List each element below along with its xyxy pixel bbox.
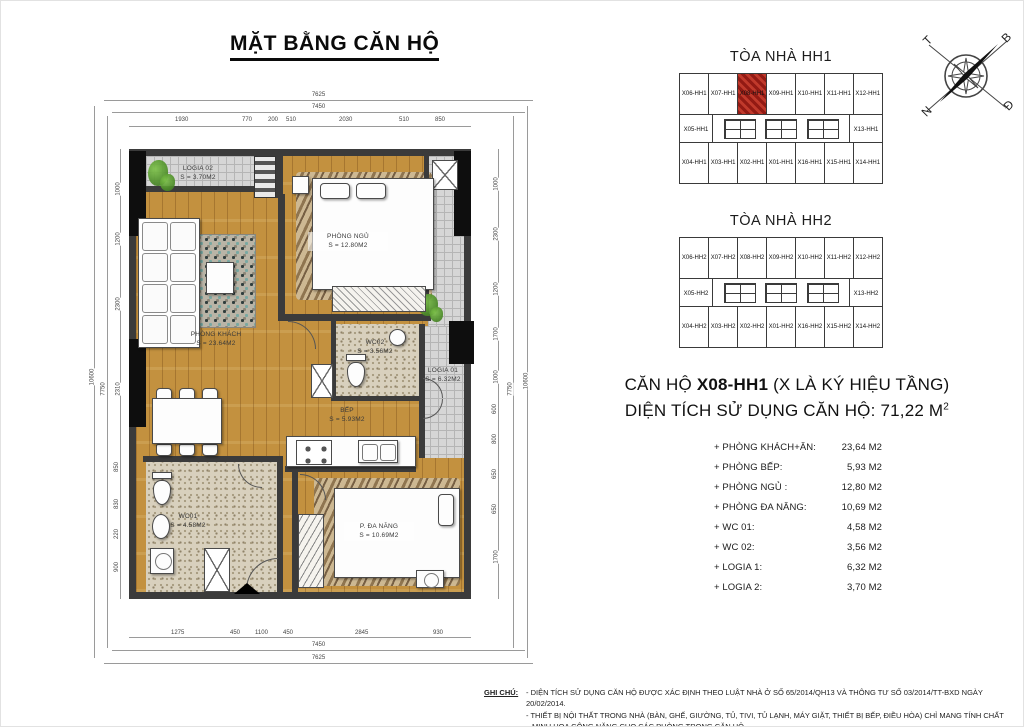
floor-plan: 7625 7450 1930 770 200 510 2030 510 850 … (86, 86, 551, 678)
room-name: LOGIA 02 (158, 164, 238, 173)
dim-label: 800 (492, 434, 498, 444)
footnote-line: - THIẾT BỊ NỘI THẤT TRONG NHÀ (BÀN, GHẾ,… (526, 710, 1004, 721)
building-hh1-title: TÒA NHÀ HH1 (679, 49, 883, 65)
list-item: + PHÒNG BẾP:5,93 M2 (714, 462, 882, 473)
footnote-lines: - DIỆN TÍCH SỬ DỤNG CĂN HỘ ĐƯỢC XÁC ĐỊNH… (526, 687, 1004, 727)
room-name: WC02 (342, 338, 408, 347)
cabinet (311, 364, 333, 398)
apartment-info: CĂN HỘ X08-HH1 (X LÀ KÝ HIỆU TẦNG) DIỆN … (601, 375, 973, 421)
unit-cell: X04-HH2 (679, 306, 709, 348)
dim-label: 7450 (310, 104, 327, 110)
nightstand (292, 176, 309, 194)
dim-label: 2300 (116, 297, 122, 310)
unit-cell: X13-HH2 (849, 278, 883, 310)
room-list-value: 3,70 M2 (847, 582, 882, 593)
dim-label: 7450 (310, 642, 327, 648)
room-label-kitchen: BẾP S = 5.93M2 (312, 406, 382, 425)
unit-cell: X15-HH1 (824, 142, 854, 184)
list-item: + PHÒNG NGỦ :12,80 M2 (714, 482, 882, 493)
room-list-label: + PHÒNG BẾP: (714, 462, 783, 473)
dim-label: 650 (492, 504, 498, 514)
dim-label: 1700 (494, 550, 500, 563)
footnote-label: GHI CHÚ: (484, 687, 518, 698)
coffee-table (206, 262, 234, 294)
unit-cell: X01-HH2 (766, 306, 796, 348)
unit-cell: X16-HH1 (795, 142, 825, 184)
elevator-core (724, 119, 756, 139)
sofa-cushion (170, 222, 196, 251)
plant (430, 307, 443, 322)
apartment-area-line: DIỆN TÍCH SỬ DỤNG CĂN HỘ: 71,22 M2 (601, 401, 973, 421)
unit-cell: X13-HH1 (849, 114, 883, 146)
list-item: + PHÒNG ĐA NĂNG:10,69 M2 (714, 502, 882, 513)
room-list-value: 10,69 M2 (842, 502, 882, 513)
room-list-label: + PHÒNG NGỦ : (714, 482, 787, 493)
washer-drum (155, 553, 172, 570)
list-item: + PHÒNG KHÁCH+ĂN:23,64 M2 (714, 442, 882, 453)
dim-label: 770 (241, 117, 253, 123)
dim-label: 830 (114, 499, 120, 509)
room-area: S = 12.80M2 (308, 241, 388, 250)
pillow (320, 183, 350, 199)
room-name: P. ĐA NĂNG (344, 522, 414, 531)
dim-label: 1100 (254, 630, 269, 636)
dining-chair (179, 444, 195, 456)
dim-label: 1000 (494, 370, 500, 383)
sofa-cushion (142, 253, 168, 282)
dim-line: 7625 (104, 663, 533, 664)
hh1-mid-row: X05-HH1 X13-HH1 (679, 114, 883, 144)
room-list-value: 12,80 M2 (842, 482, 882, 493)
dining-table (152, 398, 222, 444)
footnote: GHI CHÚ: - DIỆN TÍCH SỬ DỤNG CĂN HỘ ĐƯỢC… (484, 687, 1004, 727)
dim-label: 1000 (494, 177, 500, 190)
room-label-wc1: WC01 S = 4.58M2 (154, 512, 222, 531)
table-top (424, 573, 439, 588)
building-hh2-title: TÒA NHÀ HH2 (679, 213, 883, 229)
dim-label: 1700 (494, 327, 500, 340)
room-area: S = 3.56M2 (342, 347, 408, 356)
elevator-core (724, 283, 756, 303)
dim-label: 650 (492, 469, 498, 479)
room-list-label: + LOGIA 2: (714, 582, 762, 593)
unit-cell: X02-HH2 (737, 306, 767, 348)
dim-label: 1000 (116, 182, 122, 195)
elevator-core (765, 283, 797, 303)
footnote-line: MINH HỌA CÔNG NĂNG CHO CÁC PHÒNG TRONG C… (526, 721, 1004, 727)
room-area: S = 6.32M2 (413, 375, 473, 384)
hh1-top-row: X06-HH1 X07-HH1 X08-HH1 X09-HH1 X10-HH1 … (679, 73, 883, 115)
wall (276, 156, 283, 198)
room-list-label: + PHÒNG ĐA NĂNG: (714, 502, 807, 513)
dim-label: 510 (285, 117, 297, 123)
unit-cell: X14-HH1 (853, 142, 883, 184)
room-label-multi: P. ĐA NĂNG S = 10.69M2 (344, 522, 414, 541)
unit-cell: X04-HH1 (679, 142, 709, 184)
sofa-cushion (142, 222, 168, 251)
room-label-living: PHÒNG KHÁCH S = 23.64M2 (176, 330, 256, 349)
toilet (152, 472, 172, 479)
unit-cell: X12-HH1 (853, 73, 883, 115)
unit-cell: X03-HH2 (708, 306, 738, 348)
dim-label: 930 (432, 630, 444, 636)
dim-line: 7450 (112, 650, 525, 651)
list-item: + WC 02:3,56 M2 (714, 542, 882, 553)
dim-line (129, 637, 471, 638)
list-item: + LOGIA 2:3,70 M2 (714, 582, 882, 593)
unit-cell: X09-HH2 (766, 237, 796, 279)
dim-label: 1930 (174, 117, 189, 123)
list-item: + LOGIA 1:6,32 M2 (714, 562, 882, 573)
dim-line (120, 149, 121, 599)
washing-machine (150, 548, 174, 574)
stove (296, 440, 332, 465)
technical-shaft (432, 160, 458, 190)
compass-label-east: Đ (1001, 97, 1017, 113)
dim-line: 7450 (112, 112, 525, 113)
unit-cell: X06-HH1 (679, 73, 709, 115)
dim-label: 10600 (523, 373, 529, 390)
list-item: + WC 01:4,58 M2 (714, 522, 882, 533)
dim-line (129, 126, 471, 127)
room-area: S = 3.70M2 (158, 173, 238, 182)
room-list-label: + PHÒNG KHÁCH+ĂN: (714, 442, 816, 453)
room-list-value: 23,64 M2 (842, 442, 882, 453)
dim-label: 7750 (101, 382, 107, 395)
room-list-label: + LOGIA 1: (714, 562, 762, 573)
room-name: BẾP (312, 406, 382, 415)
room-name: PHÒNG NGỦ (308, 232, 388, 241)
footnote-line: - DIỆN TÍCH SỬ DỤNG CĂN HỘ ĐƯỢC XÁC ĐỊNH… (526, 687, 1004, 710)
wardrobe (298, 514, 324, 588)
unit-cell: X07-HH1 (708, 73, 738, 115)
hh2-bottom-row: X04-HH2 X03-HH2 X02-HH2 X01-HH2 X16-HH2 … (679, 306, 883, 348)
dim-label: 510 (398, 117, 410, 123)
unit-cell: X03-HH1 (708, 142, 738, 184)
elevator-core (807, 119, 839, 139)
wall (331, 396, 424, 401)
dim-label: 2310 (116, 382, 122, 395)
unit-cell: X01-HH1 (766, 142, 796, 184)
unit-cell: X14-HH2 (853, 306, 883, 348)
room-area: S = 4.58M2 (154, 521, 222, 530)
room-list-label: + WC 02: (714, 542, 755, 553)
dim-label: 1275 (170, 630, 185, 636)
sink-basin (380, 444, 396, 461)
sofa-cushion (170, 253, 196, 282)
dim-label: 900 (114, 562, 120, 572)
column (449, 321, 474, 364)
wardrobe (332, 286, 426, 312)
room-name: LOGIA 01 (413, 366, 473, 375)
unit-cell: X11-HH2 (824, 237, 854, 279)
sofa-cushion (142, 315, 168, 344)
sofa-cushion (142, 284, 168, 313)
sink-basin (362, 444, 378, 461)
apartment-prefix: CĂN HỘ (625, 375, 697, 394)
room-label-wc2: WC02 S = 3.56M2 (342, 338, 408, 357)
unit-cell: X12-HH2 (853, 237, 883, 279)
unit-cell: X08-HH2 (737, 237, 767, 279)
pillow (438, 494, 454, 526)
pillow (356, 183, 386, 199)
dim-label: 220 (114, 529, 120, 539)
unit-cell: X05-HH1 (679, 114, 713, 146)
page: MẶT BẰNG CĂN HỘ T B N Đ 7625 7450 1930 7… (0, 0, 1024, 727)
building-core (712, 278, 851, 308)
room-label-logia1: LOGIA 01 S = 6.32M2 (413, 366, 473, 385)
dim-label: 7625 (310, 92, 327, 98)
dim-label: 850 (114, 462, 120, 472)
area-superscript: 2 (943, 401, 949, 412)
unit-cell: X09-HH1 (766, 73, 796, 115)
building-hh2: TÒA NHÀ HH2 X06-HH2 X07-HH2 X08-HH2 X09-… (679, 213, 883, 348)
unit-cell: X07-HH2 (708, 237, 738, 279)
wall (278, 194, 285, 321)
unit-cell: X11-HH1 (824, 73, 854, 115)
hh2-mid-row: X05-HH2 X13-HH2 (679, 278, 883, 308)
apartment-area-label: DIỆN TÍCH SỬ DỤNG CĂN HỘ: 71,22 M (625, 401, 943, 420)
dim-label: 10600 (89, 369, 95, 386)
compass-label-west: T (920, 32, 936, 48)
dim-label: 2845 (354, 630, 369, 636)
building-core (712, 114, 851, 144)
compass-rose-icon: T B N Đ (913, 29, 1018, 124)
room-list-label: + WC 01: (714, 522, 755, 533)
dim-label: 200 (267, 117, 279, 123)
unit-cell: X16-HH2 (795, 306, 825, 348)
closet (204, 548, 230, 592)
dim-label: 600 (492, 404, 498, 414)
room-list-value: 5,93 M2 (847, 462, 882, 473)
dim-label: 7750 (508, 382, 514, 395)
unit-cell: X02-HH1 (737, 142, 767, 184)
dim-label: 7625 (310, 655, 327, 661)
room-area: S = 23.64M2 (176, 339, 256, 348)
dim-label: 850 (434, 117, 446, 123)
unit-cell: X15-HH2 (824, 306, 854, 348)
entrance-arrow-icon (234, 583, 260, 594)
unit-cell: X05-HH2 (679, 278, 713, 310)
dim-line: 7625 (104, 100, 533, 101)
elevator-core (765, 119, 797, 139)
dim-label: 1200 (116, 232, 122, 245)
unit-cell-highlighted: X08-HH1 (737, 73, 767, 115)
dim-label: 450 (229, 630, 241, 636)
page-title: MẶT BẰNG CĂN HỘ (230, 32, 439, 61)
apartment-name-line: CĂN HỘ X08-HH1 (X LÀ KÝ HIỆU TẦNG) (601, 375, 973, 395)
room-area-list: + PHÒNG KHÁCH+ĂN:23,64 M2 + PHÒNG BẾP:5,… (714, 442, 882, 602)
room-list-value: 4,58 M2 (847, 522, 882, 533)
room-area: S = 10.69M2 (344, 531, 414, 540)
wall (285, 314, 431, 321)
building-hh1: TÒA NHÀ HH1 X06-HH1 X07-HH1 X08-HH1 X09-… (679, 49, 883, 184)
dim-label: 2300 (494, 227, 500, 240)
dim-label: 450 (282, 630, 294, 636)
room-label-bedroom: PHÒNG NGỦ S = 12.80M2 (308, 232, 388, 251)
side-table (416, 570, 444, 588)
dim-line (107, 116, 108, 648)
room-name: WC01 (154, 512, 222, 521)
dining-chair (156, 444, 172, 456)
elevator-core (807, 283, 839, 303)
hh1-bottom-row: X04-HH1 X03-HH1 X02-HH1 X01-HH1 X16-HH1 … (679, 142, 883, 184)
column (129, 339, 146, 427)
shaft (254, 156, 276, 198)
apartment-suffix: (X LÀ KÝ HIỆU TẦNG) (768, 375, 949, 394)
hh2-top-row: X06-HH2 X07-HH2 X08-HH2 X09-HH2 X10-HH2 … (679, 237, 883, 279)
unit-cell: X10-HH2 (795, 237, 825, 279)
room-label-logia2: LOGIA 02 S = 3.70M2 (158, 164, 238, 183)
room-area: S = 5.93M2 (312, 415, 382, 424)
dim-label: 1200 (494, 282, 500, 295)
sofa-cushion (170, 284, 196, 313)
kitchen-sink (358, 440, 398, 463)
compass-label-north: B (999, 30, 1015, 46)
room-list-value: 3,56 M2 (847, 542, 882, 553)
room-name: PHÒNG KHÁCH (176, 330, 256, 339)
apartment-unit-code: X08-HH1 (697, 375, 768, 394)
unit-cell: X10-HH1 (795, 73, 825, 115)
wall (143, 456, 283, 462)
dining-chair (202, 444, 218, 456)
sofa (138, 218, 200, 348)
unit-cell: X06-HH2 (679, 237, 709, 279)
dim-label: 2030 (338, 117, 353, 123)
room-list-value: 6,32 M2 (847, 562, 882, 573)
